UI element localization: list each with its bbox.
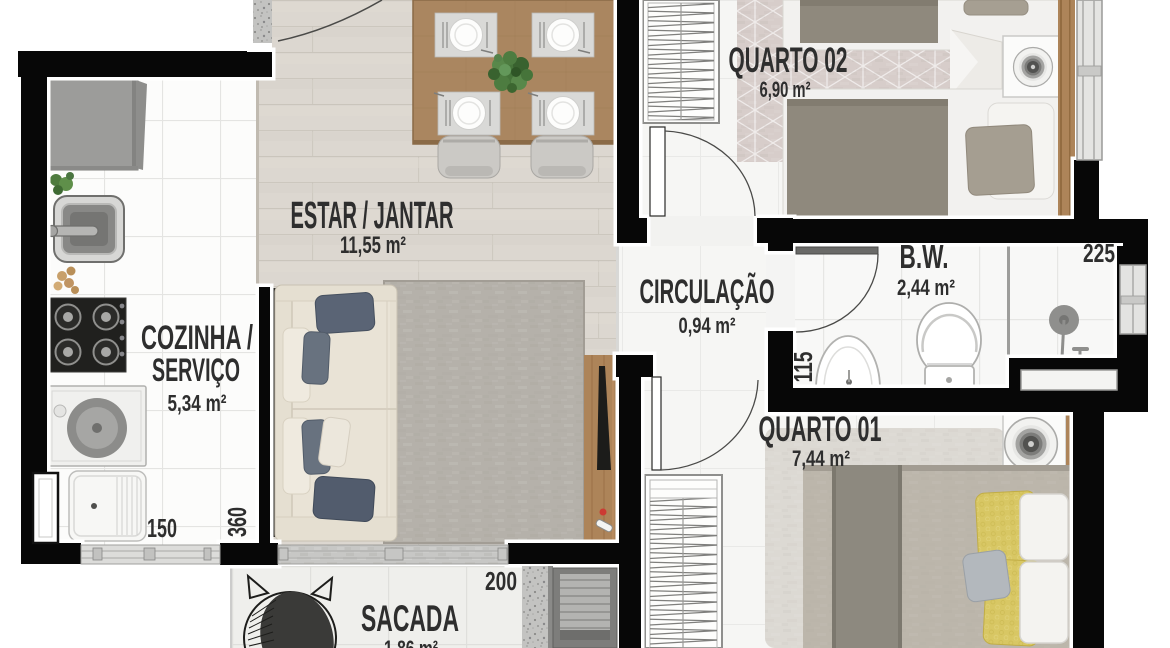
svg-text:2,44 m²: 2,44 m² [897, 275, 955, 300]
svg-text:6,90 m²: 6,90 m² [760, 77, 811, 102]
svg-text:11,55 m²: 11,55 m² [340, 232, 406, 259]
svg-text:150: 150 [147, 513, 177, 543]
svg-text:ESTAR / JANTAR: ESTAR / JANTAR [291, 195, 454, 237]
svg-text:1,86 m²: 1,86 m² [384, 636, 438, 648]
svg-text:225: 225 [1083, 238, 1115, 268]
svg-text:QUARTO 01: QUARTO 01 [759, 410, 882, 449]
svg-text:B.W.: B.W. [900, 238, 949, 275]
svg-text:360: 360 [222, 507, 252, 537]
svg-text:CIRCULAÇÃO: CIRCULAÇÃO [640, 273, 775, 311]
svg-text:7,44 m²: 7,44 m² [792, 446, 850, 471]
svg-text:115: 115 [788, 352, 818, 383]
svg-text:QUARTO 02: QUARTO 02 [729, 41, 848, 80]
svg-text:SERVIÇO: SERVIÇO [152, 352, 240, 388]
svg-text:200: 200 [485, 566, 517, 596]
svg-text:5,34 m²: 5,34 m² [168, 390, 227, 416]
svg-text:0,94 m²: 0,94 m² [679, 313, 736, 338]
svg-text:SACADA: SACADA [361, 598, 459, 639]
